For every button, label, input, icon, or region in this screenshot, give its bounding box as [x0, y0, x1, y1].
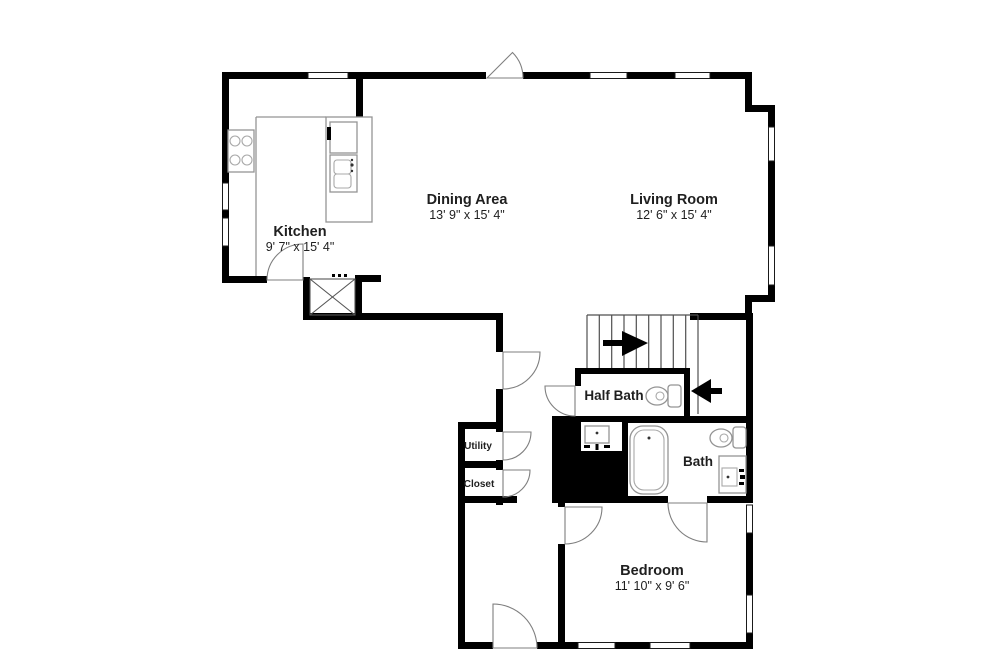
- window: [769, 127, 775, 161]
- closet-label: Closet: [464, 479, 495, 490]
- living-room-label: Living Room: [630, 192, 718, 208]
- window: [675, 73, 710, 79]
- window: [578, 643, 615, 649]
- bathtub-icon: [630, 426, 668, 494]
- window: [223, 183, 229, 210]
- dining-area-label: Dining Area: [427, 192, 509, 208]
- entry-arrow-icon: [691, 379, 722, 403]
- bath-vanity-icon: [719, 456, 746, 493]
- entry-door-bottom: [493, 604, 537, 648]
- floor-plan: Kitchen 9' 7" x 15' 4" Dining Area 13' 9…: [0, 0, 1000, 667]
- bath-door: [668, 503, 707, 542]
- stair-direction-arrow-icon: [603, 331, 648, 356]
- window: [308, 73, 348, 79]
- chase-box: [310, 274, 355, 315]
- chase-mass: [552, 416, 628, 503]
- bath-label: Bath: [683, 454, 713, 469]
- floor-plan-svg: Kitchen 9' 7" x 15' 4" Dining Area 13' 9…: [0, 0, 1000, 667]
- toilet-icon: [710, 427, 746, 448]
- utility-label: Utility: [464, 441, 492, 452]
- half-bath-sink: [585, 426, 609, 443]
- half-bath-fixtures: [646, 385, 681, 407]
- bedroom-dims: 11' 10" x 9' 6": [615, 579, 690, 593]
- kitchen-dims: 9' 7" x 15' 4": [266, 240, 335, 254]
- closet-door: [503, 470, 530, 497]
- window: [747, 595, 753, 633]
- window: [223, 218, 229, 246]
- bedroom-door: [565, 507, 602, 544]
- refrigerator-icon: [327, 122, 357, 153]
- stove-icon: [228, 130, 254, 172]
- toilet-icon: [646, 385, 681, 407]
- half-bath-label: Half Bath: [584, 388, 643, 403]
- windows: [223, 73, 775, 649]
- utility-door: [503, 432, 531, 460]
- window: [650, 643, 690, 649]
- hall-door: [503, 352, 540, 389]
- living-room-dims: 12' 6" x 15' 4": [636, 208, 712, 222]
- window: [747, 505, 753, 533]
- window: [769, 246, 775, 285]
- kitchen-label: Kitchen: [273, 224, 326, 240]
- kitchen-sink-icon: [330, 155, 357, 192]
- half-bath-door: [545, 386, 575, 416]
- dining-area-dims: 13' 9" x 15' 4": [429, 208, 505, 222]
- walls: [222, 72, 775, 649]
- entry-door-top: [487, 53, 523, 79]
- window: [590, 73, 627, 79]
- bedroom-label: Bedroom: [620, 563, 684, 579]
